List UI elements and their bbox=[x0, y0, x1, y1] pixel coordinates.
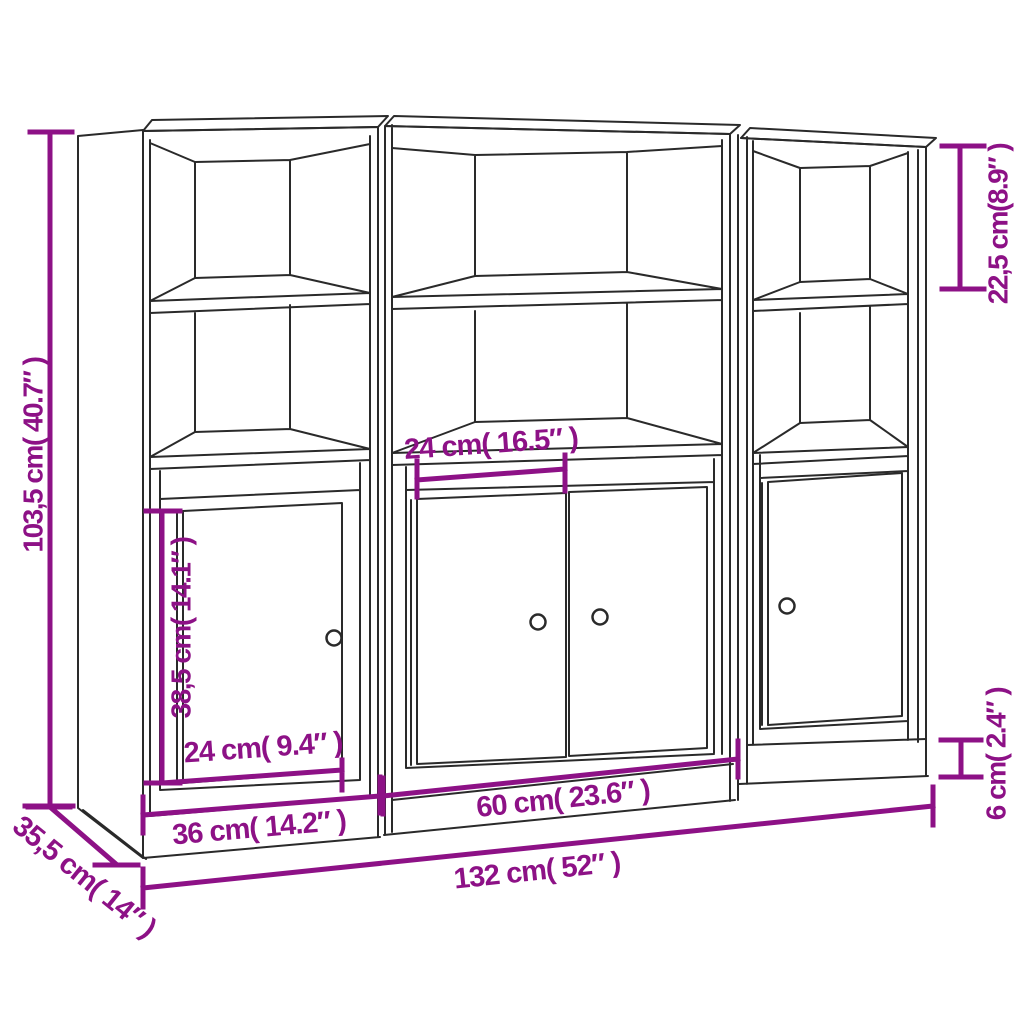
dim-label-plinth-height: 6 cm( 2.4″ ) bbox=[981, 688, 1012, 821]
diagram-canvas: 103,5 cm( 40.7″ ) 22,5 cm(8.9″ ) 24 cm( … bbox=[0, 0, 1024, 1024]
dim-line-plinth-height bbox=[941, 740, 981, 777]
middle-unit-doors bbox=[411, 487, 707, 765]
left-door-handle bbox=[327, 631, 342, 646]
left-side-panel bbox=[78, 130, 143, 858]
middle-right-door-handle bbox=[593, 610, 608, 625]
dim-line-top-compartment-height bbox=[942, 146, 984, 289]
dimension-labels: 103,5 cm( 40.7″ ) 22,5 cm(8.9″ ) 24 cm( … bbox=[6, 144, 1013, 945]
dim-label-top-compartment-height: 22,5 cm(8.9″ ) bbox=[983, 144, 1014, 305]
dimension-diagram: 103,5 cm( 40.7″ ) 22,5 cm(8.9″ ) 24 cm( … bbox=[0, 0, 1024, 1024]
right-door-handle bbox=[780, 599, 795, 614]
dim-label-side-door-width: 24 cm( 9.4″ ) bbox=[183, 726, 344, 769]
middle-left-door-handle bbox=[531, 615, 546, 630]
right-unit-shelves bbox=[747, 141, 926, 745]
dim-label-side-door-height: 38,5 cm( 14.1″ ) bbox=[166, 537, 197, 718]
dim-label-overall-height: 103,5 cm( 40.7″ ) bbox=[18, 357, 49, 552]
